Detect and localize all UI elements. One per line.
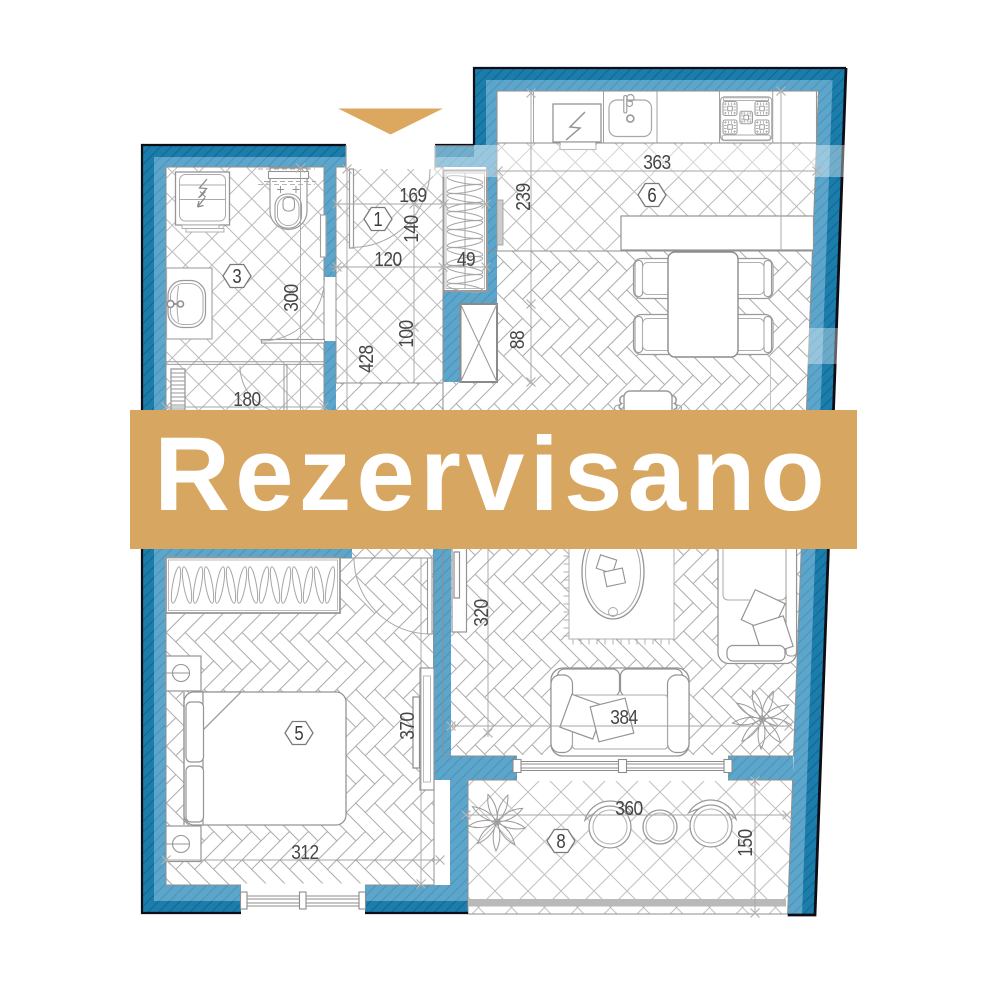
svg-text:180: 180	[233, 389, 261, 411]
svg-text:Rezervisano: Rezervisano	[154, 416, 830, 533]
svg-text:120: 120	[374, 249, 402, 271]
svg-text:88: 88	[507, 330, 529, 349]
svg-text:3: 3	[232, 265, 241, 288]
svg-text:428: 428	[356, 345, 378, 373]
svg-text:363: 363	[643, 152, 671, 174]
svg-text:360: 360	[615, 798, 643, 820]
svg-text:6: 6	[647, 184, 656, 207]
svg-text:100: 100	[396, 320, 418, 348]
svg-text:49: 49	[457, 249, 476, 271]
svg-text:384: 384	[610, 707, 638, 729]
svg-text:1: 1	[373, 208, 382, 231]
svg-text:8: 8	[556, 830, 565, 853]
svg-text:300: 300	[281, 284, 303, 312]
svg-text:150: 150	[735, 829, 757, 857]
svg-text:370: 370	[397, 712, 419, 740]
svg-text:5: 5	[294, 722, 303, 745]
svg-text:239: 239	[513, 183, 535, 211]
svg-text:320: 320	[471, 599, 493, 627]
svg-text:312: 312	[291, 842, 319, 864]
svg-text:140: 140	[401, 215, 423, 243]
svg-text:169: 169	[399, 185, 427, 207]
